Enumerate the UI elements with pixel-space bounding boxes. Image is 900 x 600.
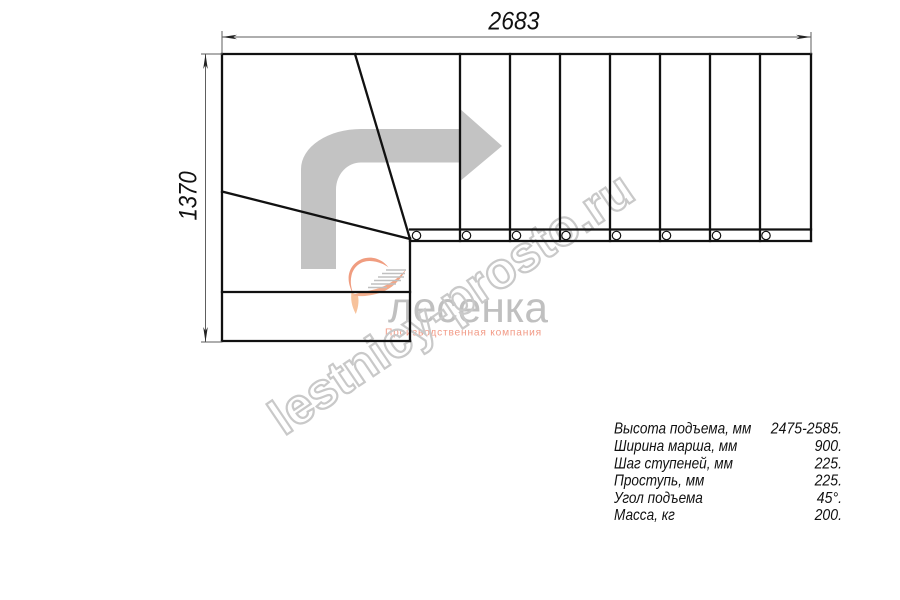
svg-text:Проступь, мм: Проступь, мм <box>614 473 704 490</box>
svg-text:Ширина марша, мм: Ширина марша, мм <box>614 438 737 455</box>
svg-text:Угол подъема: Угол подъема <box>613 490 703 507</box>
svg-text:Высота подъема, мм: Высота подъема, мм <box>614 421 751 438</box>
svg-text:Масса, кг: Масса, кг <box>614 507 675 524</box>
svg-text:Шаг ступеней, мм: Шаг ступеней, мм <box>614 455 733 472</box>
svg-text:200.: 200. <box>814 506 842 524</box>
svg-text:900.: 900. <box>815 437 842 455</box>
svg-text:225.: 225. <box>814 472 842 490</box>
svg-text:2475-2585.: 2475-2585. <box>770 420 842 438</box>
svg-text:1370: 1370 <box>175 171 203 220</box>
svg-text:225.: 225. <box>814 454 842 472</box>
svg-text:2683: 2683 <box>487 8 540 36</box>
svg-text:45°.: 45°. <box>817 489 842 507</box>
